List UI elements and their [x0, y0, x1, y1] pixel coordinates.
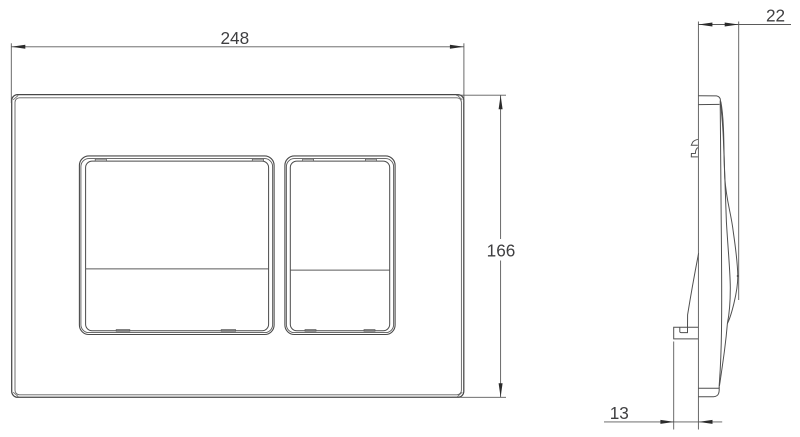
svg-text:166: 166 [487, 241, 516, 261]
svg-text:248: 248 [220, 28, 249, 48]
svg-text:22: 22 [766, 6, 785, 26]
svg-text:13: 13 [610, 403, 629, 423]
